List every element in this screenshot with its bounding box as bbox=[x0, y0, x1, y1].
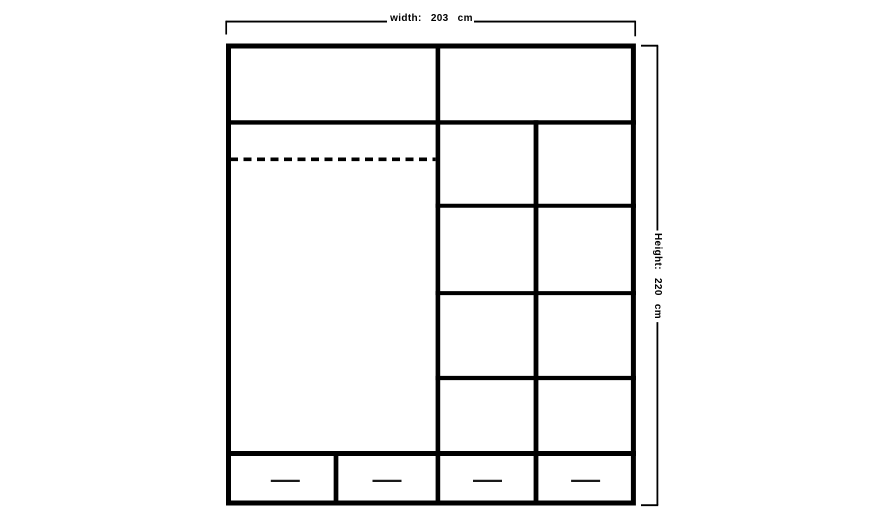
svg-text:Height: 220 cm: Height: 220 cm bbox=[652, 233, 663, 319]
svg-text:width: 203 cm: width: 203 cm bbox=[389, 13, 473, 24]
